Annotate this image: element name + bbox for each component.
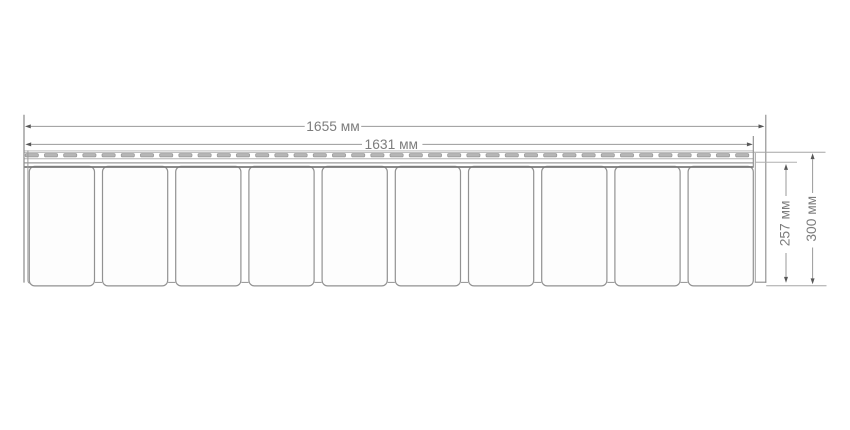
svg-text:300 мм: 300 мм <box>804 196 819 242</box>
svg-text:257 мм: 257 мм <box>778 200 793 246</box>
svg-text:1655 мм: 1655 мм <box>306 119 360 134</box>
svg-text:1631 мм: 1631 мм <box>365 137 419 152</box>
